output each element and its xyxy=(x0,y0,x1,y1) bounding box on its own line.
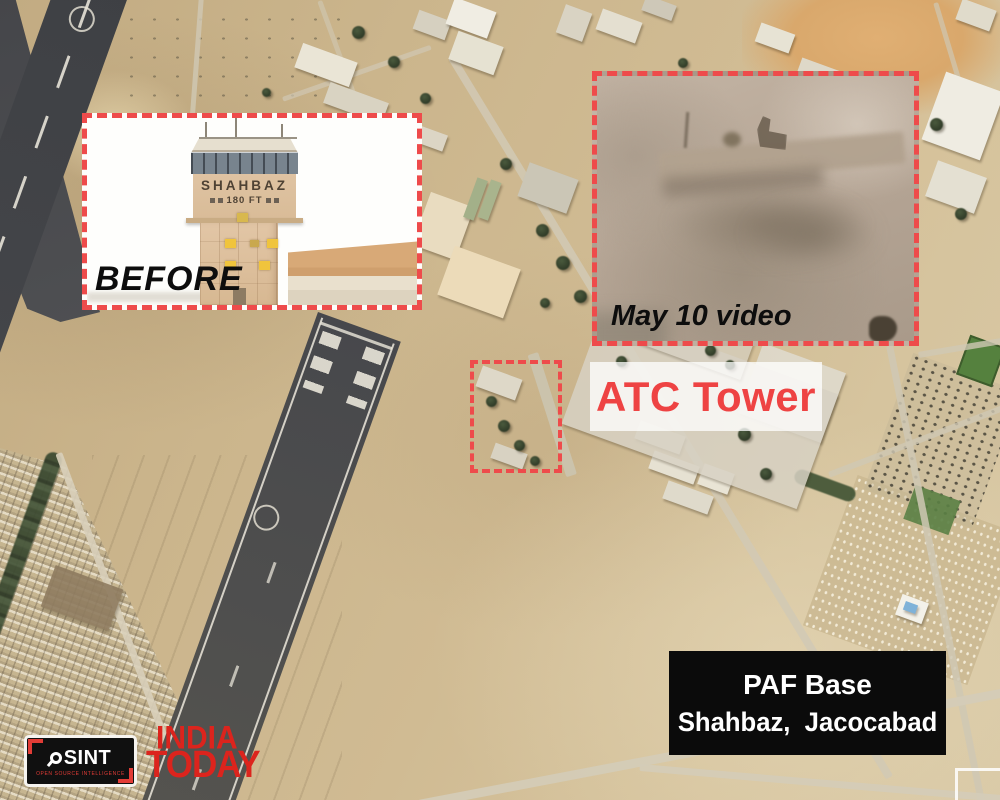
tree xyxy=(678,58,688,68)
building xyxy=(446,0,497,39)
tower-control-cab xyxy=(191,152,298,174)
attached-building xyxy=(288,236,417,305)
location-line1: PAF Base xyxy=(743,669,872,701)
lit-window xyxy=(225,239,236,248)
runway-circle-mark xyxy=(250,501,283,534)
frame-corner-mark xyxy=(955,768,1000,800)
may10-label: May 10 video xyxy=(611,300,792,333)
tree xyxy=(705,345,716,356)
magnifier-icon xyxy=(50,752,62,764)
may10-video-inset: May 10 video xyxy=(592,71,919,346)
building xyxy=(517,162,578,214)
tree xyxy=(760,468,772,480)
location-box: PAF Base Shahbaz, Jacocabad xyxy=(669,651,946,755)
lit-window xyxy=(250,240,259,247)
osint-logo-plate: SINT OPEN SOURCE INTELLIGENCE xyxy=(27,738,134,784)
runway-threshold-marks xyxy=(303,331,342,394)
tree xyxy=(352,26,365,39)
debris-silhouette xyxy=(757,116,787,150)
debris-silhouette xyxy=(723,132,741,147)
building xyxy=(437,246,521,319)
tree xyxy=(388,56,400,68)
location-line2: Shahbaz, Jacocabad xyxy=(678,707,937,738)
tree xyxy=(955,208,967,220)
tree xyxy=(420,93,431,104)
window-icon xyxy=(274,198,279,203)
building xyxy=(413,10,452,40)
before-inset: SHAHBAZ 180 FT BEFORE xyxy=(82,113,422,310)
window-icon xyxy=(266,198,271,203)
window-icon xyxy=(218,198,223,203)
tower-roof xyxy=(187,139,302,152)
window-icon xyxy=(210,198,215,203)
osint-tagline: OPEN SOURCE INTELLIGENCE xyxy=(36,771,125,777)
osint-logo: SINT OPEN SOURCE INTELLIGENCE xyxy=(24,735,137,787)
lit-window xyxy=(237,213,248,222)
tree xyxy=(540,298,550,308)
road xyxy=(639,764,1000,800)
before-label: BEFORE xyxy=(95,260,243,299)
building xyxy=(925,160,987,213)
corner-bracket-icon xyxy=(28,739,43,754)
tower-height-sign: 180 FT xyxy=(193,195,296,206)
tree xyxy=(574,290,587,303)
tree xyxy=(556,256,570,270)
runway-threshold-marks xyxy=(346,346,385,409)
before-photo: SHAHBAZ 180 FT BEFORE xyxy=(87,118,417,305)
tree xyxy=(262,88,271,97)
antenna-rail xyxy=(199,137,297,139)
building xyxy=(641,0,677,21)
smoke-cloud xyxy=(747,202,877,266)
building xyxy=(556,4,593,42)
dark-debris xyxy=(869,316,897,342)
news-graphic: ATC Tower SHAHBAZ 180 FT xyxy=(0,0,1000,800)
corner-bracket-icon xyxy=(118,768,133,783)
tower-sign-band: SHAHBAZ 180 FT xyxy=(193,174,296,218)
tree xyxy=(500,158,512,170)
tower-name-sign: SHAHBAZ xyxy=(193,178,296,193)
osint-wordmark: SINT xyxy=(50,747,112,770)
lit-window xyxy=(267,239,278,248)
runway-circle-mark xyxy=(65,2,98,35)
tree xyxy=(930,118,943,131)
atc-tower-label-text: ATC Tower xyxy=(596,373,816,421)
broken-antenna-silhouette xyxy=(684,112,690,148)
atc-tower-label: ATC Tower xyxy=(590,362,822,431)
tree xyxy=(536,224,549,237)
lit-window xyxy=(259,261,270,270)
india-today-line2: TODAY xyxy=(146,750,260,780)
atc-tower-highlight-box xyxy=(470,360,562,473)
india-today-logo: INDIA TODAY xyxy=(146,727,260,779)
building xyxy=(596,8,643,43)
